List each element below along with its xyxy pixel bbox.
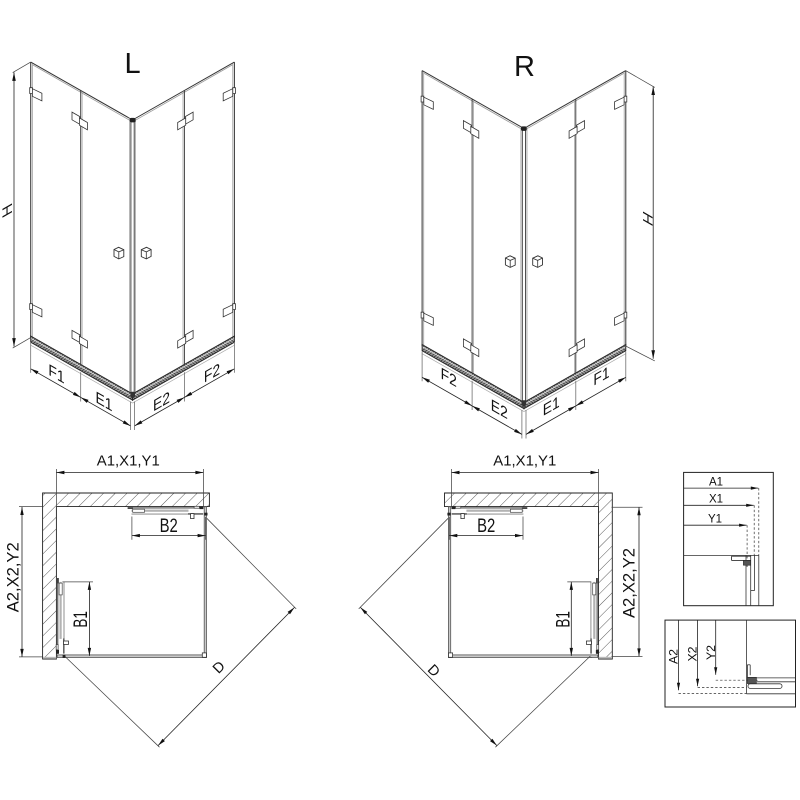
- svg-text:X2: X2: [686, 646, 700, 661]
- svg-text:X1: X1: [709, 494, 723, 506]
- svg-text:A1,X1,Y1: A1,X1,Y1: [97, 454, 160, 470]
- svg-text:B1: B1: [71, 611, 92, 628]
- svg-text:B2: B2: [160, 516, 178, 537]
- svg-text:A2,X2,Y2: A2,X2,Y2: [4, 542, 22, 612]
- svg-text:A2,X2,Y2: A2,X2,Y2: [620, 548, 638, 618]
- svg-text:A1,X1,Y1: A1,X1,Y1: [493, 454, 556, 470]
- svg-text:Y1: Y1: [708, 513, 722, 525]
- svg-text:B1: B1: [553, 611, 574, 628]
- svg-text:R: R: [514, 51, 535, 83]
- svg-text:L: L: [125, 48, 141, 80]
- svg-text:B2: B2: [477, 516, 495, 537]
- svg-text:A2: A2: [667, 649, 681, 664]
- svg-text:A1: A1: [709, 476, 723, 488]
- svg-text:Y2: Y2: [704, 645, 718, 660]
